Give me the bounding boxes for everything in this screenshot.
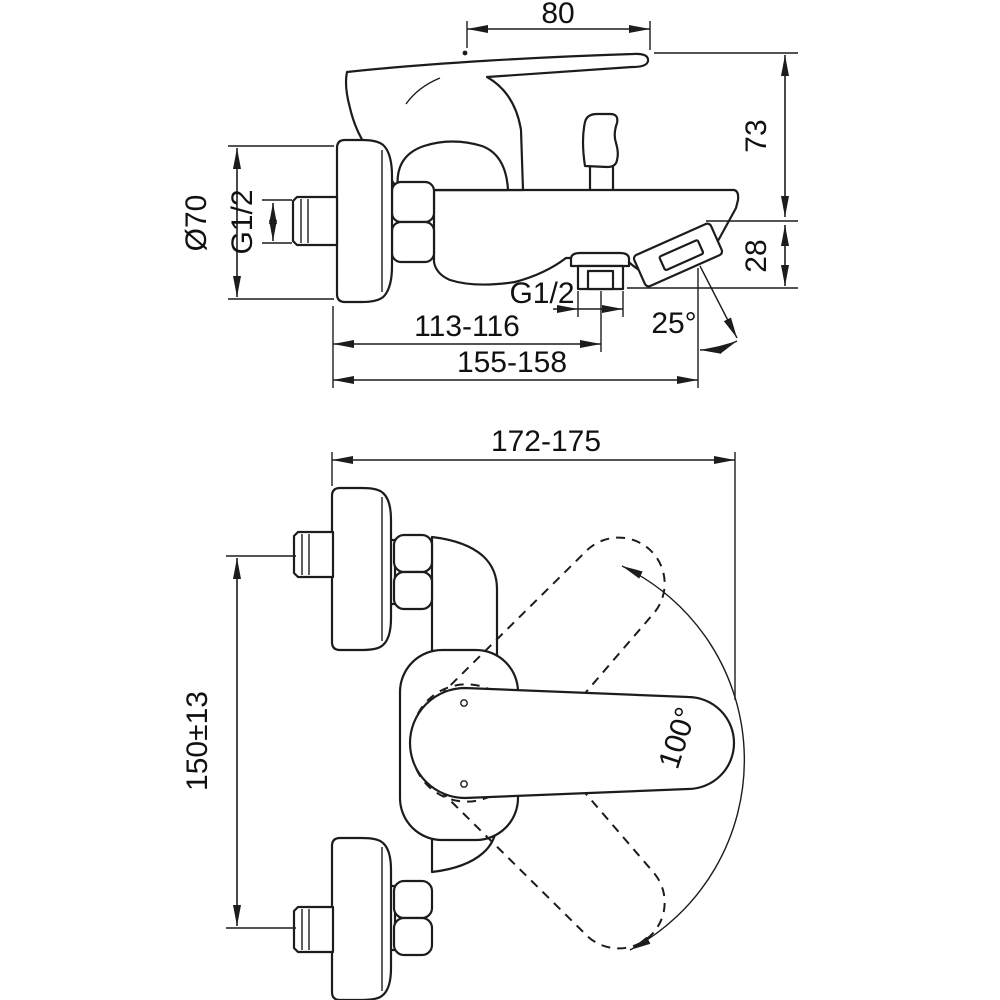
angle-leader-line bbox=[700, 266, 737, 338]
union-nut-lower bbox=[394, 918, 432, 955]
union-nut-lower-facet bbox=[392, 222, 434, 262]
diverter-stem bbox=[590, 167, 613, 190]
dimension-155-158-label: 155-158 bbox=[457, 346, 567, 379]
dimension-150: 150±13 bbox=[181, 556, 296, 928]
union-nut-upper bbox=[394, 535, 432, 572]
top-view: 172-175 150±13 100° bbox=[181, 425, 744, 1000]
dimension-g12-outlet-label: G1/2 bbox=[509, 277, 574, 310]
technical-drawing-page: 80 73 28 Ø70 G1/2 bbox=[0, 0, 1000, 1000]
inlet-nipple-lower bbox=[294, 907, 333, 952]
inlet-nipple-side bbox=[293, 197, 337, 245]
dimension-d70-label: Ø70 bbox=[180, 195, 213, 252]
faucet-dimension-drawing: 80 73 28 Ø70 G1/2 bbox=[0, 0, 1000, 1000]
dimension-150-label: 150±13 bbox=[181, 691, 214, 791]
inlet-nipple-upper bbox=[294, 532, 333, 577]
dimension-28-label: 28 bbox=[740, 239, 773, 272]
union-nut-lower bbox=[394, 881, 432, 918]
angle-25-label: 25° bbox=[651, 307, 696, 340]
dimension-g12-inlet: G1/2 bbox=[226, 189, 292, 254]
dimension-g12-inlet-label: G1/2 bbox=[226, 189, 259, 254]
escutcheon-side bbox=[337, 140, 392, 302]
union-nut-upper bbox=[394, 572, 432, 609]
diverter-knob bbox=[583, 114, 618, 167]
dimension-80: 80 bbox=[463, 0, 650, 55]
dimension-113-116-label: 113-116 bbox=[414, 310, 520, 343]
reference-dot bbox=[463, 51, 468, 56]
dimension-172-175-label: 172-175 bbox=[491, 425, 601, 458]
side-view: 80 73 28 Ø70 G1/2 bbox=[180, 0, 798, 388]
dimension-73-label: 73 bbox=[740, 119, 773, 152]
angle-arc bbox=[700, 341, 737, 350]
hose-outlet-flange bbox=[571, 253, 629, 266]
hose-outlet-inner bbox=[588, 271, 613, 289]
union-nut-upper-facet bbox=[392, 182, 434, 222]
dimension-80-label: 80 bbox=[541, 0, 574, 30]
